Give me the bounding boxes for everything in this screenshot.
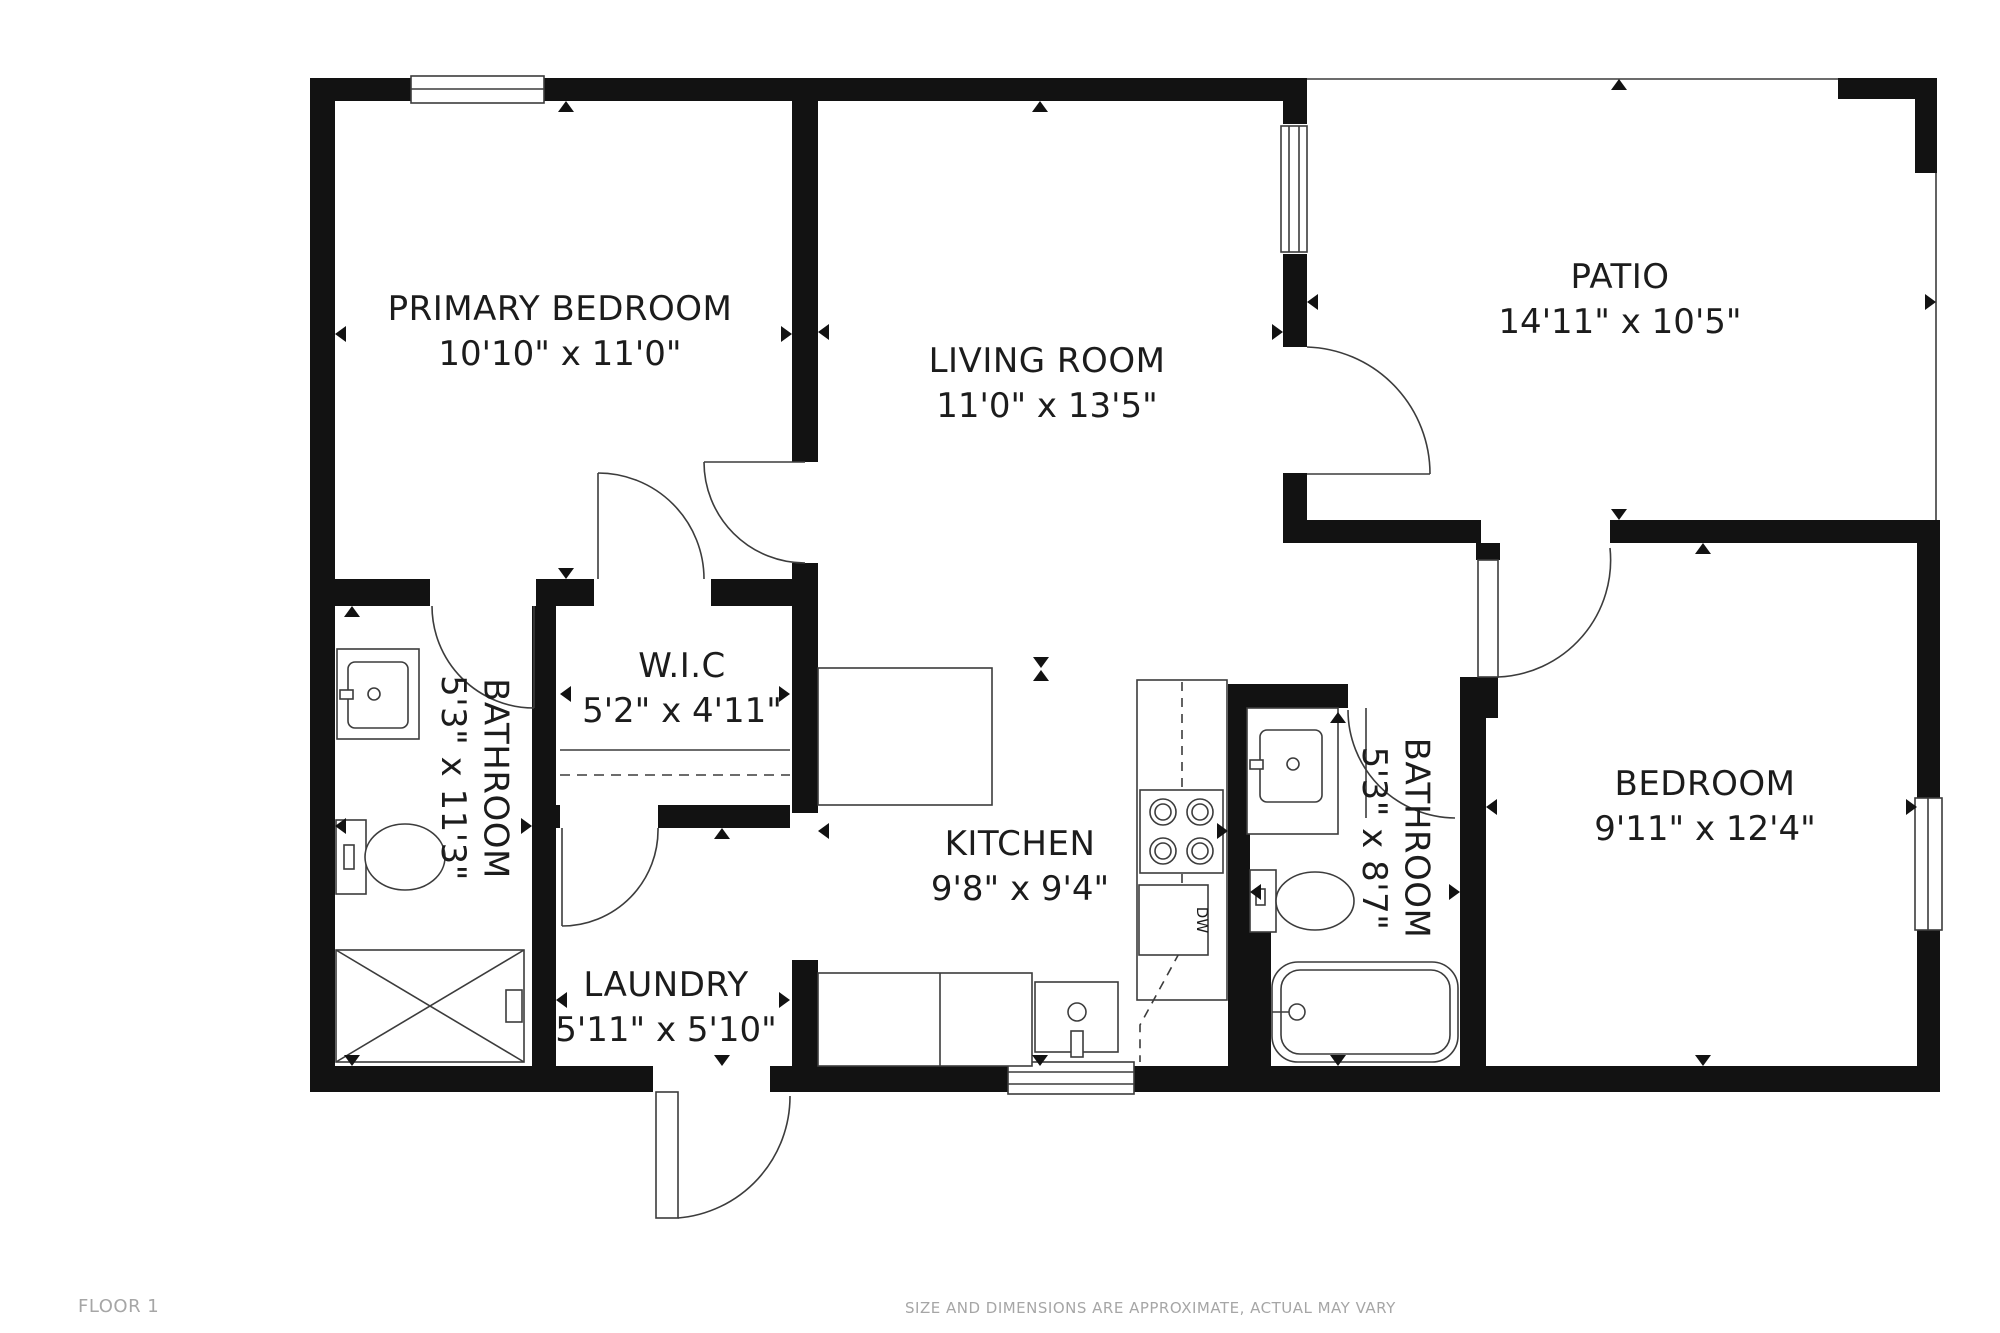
wall-laundry-top-b: [658, 805, 790, 828]
arrow-up-icon: [344, 606, 360, 617]
room-name: LIVING ROOM: [929, 339, 1166, 384]
room-label-living-room: LIVING ROOM 11'0" x 13'5": [929, 339, 1166, 429]
arrow-left-icon: [335, 326, 346, 342]
arrow-up-icon: [1032, 101, 1048, 112]
room-name: BATHROOM: [1395, 738, 1438, 939]
room-label-bathroom-2: BATHROOM 5'3" x 8'7": [1353, 738, 1438, 939]
room-dimensions: 11'0" x 13'5": [929, 384, 1166, 429]
window-kitchen-bottom: [1008, 1062, 1134, 1094]
dishwasher-label: DW: [1193, 907, 1211, 934]
bathtub-icon: [1272, 962, 1458, 1062]
dimension-markers: [335, 79, 1936, 1066]
wall-bedroom-door-pier: [1476, 543, 1500, 560]
wall-bottom-c: [1134, 1066, 1940, 1092]
room-dimensions: 5'3" x 8'7": [1353, 738, 1396, 939]
wall-primary-bottom-c: [711, 579, 818, 606]
arrow-up-icon: [1033, 670, 1049, 681]
closet-rod-icon: [560, 750, 790, 775]
room-name: KITCHEN: [931, 822, 1109, 867]
arrow-right-icon: [779, 992, 790, 1008]
door-laundry: [562, 828, 658, 926]
wall-bath2-corner: [1460, 677, 1498, 718]
room-label-laundry: LAUNDRY 5'11" x 5'10": [555, 963, 777, 1053]
room-name: BATHROOM: [474, 675, 517, 881]
room-label-bedroom: BEDROOM 9'11" x 12'4": [1594, 762, 1816, 852]
window-bedroom: [1915, 798, 1942, 930]
room-label-patio: PATIO 14'11" x 10'5": [1498, 255, 1741, 345]
wall-bath2-jog: [1228, 930, 1271, 1066]
wall-living-patio-a: [1283, 78, 1307, 124]
arrow-right-icon: [1449, 884, 1460, 900]
wall-primary-living: [792, 101, 818, 462]
floorplan-page: DW: [0, 0, 2000, 1333]
arrow-left-icon: [1307, 294, 1318, 310]
arrow-up-icon: [714, 828, 730, 839]
window-primary-bedroom: [411, 76, 544, 103]
wall-bath1-wic: [532, 606, 556, 1066]
arrow-down-icon: [1695, 1055, 1711, 1066]
arrow-right-icon: [521, 818, 532, 834]
wall-patio-top-stub: [1838, 78, 1937, 99]
kitchen-counter-bottom: [818, 973, 1032, 1066]
vanity-sink-icon: [337, 649, 419, 739]
vanity-sink-icon: [1247, 708, 1338, 834]
wall-bedroom-left: [1460, 718, 1486, 1066]
arrow-up-icon: [1611, 79, 1627, 90]
arrow-down-icon: [558, 568, 574, 579]
room-label-kitchen: KITCHEN 9'8" x 9'4": [931, 822, 1109, 912]
room-dimensions: 14'11" x 10'5": [1498, 300, 1741, 345]
door-bedroom: [1478, 548, 1611, 677]
arrow-right-icon: [781, 326, 792, 342]
arrow-left-icon: [818, 823, 829, 839]
room-name: PRIMARY BEDROOM: [388, 287, 733, 332]
door-entry: [656, 1092, 790, 1218]
arrow-right-icon: [1925, 294, 1936, 310]
arrow-right-icon: [1272, 324, 1283, 340]
toilet-icon: [336, 820, 445, 894]
room-dimensions: 5'3" x 11'3": [432, 675, 475, 881]
room-dimensions: 5'2" x 4'11": [582, 689, 782, 734]
room-name: W.I.C: [582, 644, 782, 689]
room-dimensions: 5'11" x 5'10": [555, 1008, 777, 1053]
wall-laundry-top-a: [532, 805, 560, 828]
room-label-bathroom-1: BATHROOM 5'3" x 11'3": [432, 675, 517, 881]
arrow-down-icon: [1611, 509, 1627, 520]
wall-top-a: [310, 78, 411, 101]
toilet-icon: [1250, 870, 1354, 932]
room-label-wic: W.I.C 5'2" x 4'11": [582, 644, 782, 734]
wall-patio-corner: [1915, 99, 1937, 173]
arrow-up-icon: [1695, 543, 1711, 554]
arrow-left-icon: [1486, 799, 1497, 815]
room-name: PATIO: [1498, 255, 1741, 300]
wall-bedroom-right-b: [1917, 928, 1940, 1092]
arrow-down-icon: [1033, 657, 1049, 668]
kitchen-peninsula: [818, 668, 992, 805]
wall-primary-bottom-a: [310, 579, 430, 606]
door-wic: [598, 473, 704, 579]
wall-bottom-b: [770, 1066, 1008, 1092]
wall-bedroom-top-a: [1283, 520, 1481, 543]
shower-icon: [336, 950, 524, 1062]
wall-bedroom-top-b: [1610, 520, 1940, 543]
disclaimer-text: SIZE AND DIMENSIONS ARE APPROXIMATE, ACT…: [905, 1299, 1396, 1317]
walls: [310, 78, 1940, 1092]
wall-living-patio-c: [1283, 473, 1307, 520]
room-dimensions: 9'11" x 12'4": [1594, 807, 1816, 852]
door-primary-bedroom: [704, 462, 805, 563]
room-label-primary-bedroom: PRIMARY BEDROOM 10'10" x 11'0": [388, 287, 733, 377]
arrow-left-icon: [818, 324, 829, 340]
wall-living-patio-b: [1283, 254, 1307, 347]
floor-label: FLOOR 1: [78, 1296, 159, 1317]
wall-primary-bottom-b: [536, 579, 594, 606]
stove-icon: [1140, 790, 1223, 873]
room-dimensions: 10'10" x 11'0": [388, 332, 733, 377]
window-living-patio: [1281, 126, 1307, 252]
arrow-down-icon: [714, 1055, 730, 1066]
floorplan-drawing: DW: [0, 0, 2000, 1333]
arrow-left-icon: [560, 686, 571, 702]
room-name: LAUNDRY: [555, 963, 777, 1008]
room-name: BEDROOM: [1594, 762, 1816, 807]
room-dimensions: 9'8" x 9'4": [931, 867, 1109, 912]
kitchen-sink-icon: [1035, 982, 1118, 1057]
wall-bedroom-right-a: [1917, 543, 1940, 800]
door-patio: [1307, 347, 1430, 474]
wall-bottom-a: [310, 1066, 653, 1092]
arrow-up-icon: [558, 101, 574, 112]
wall-top-b: [544, 78, 1303, 101]
